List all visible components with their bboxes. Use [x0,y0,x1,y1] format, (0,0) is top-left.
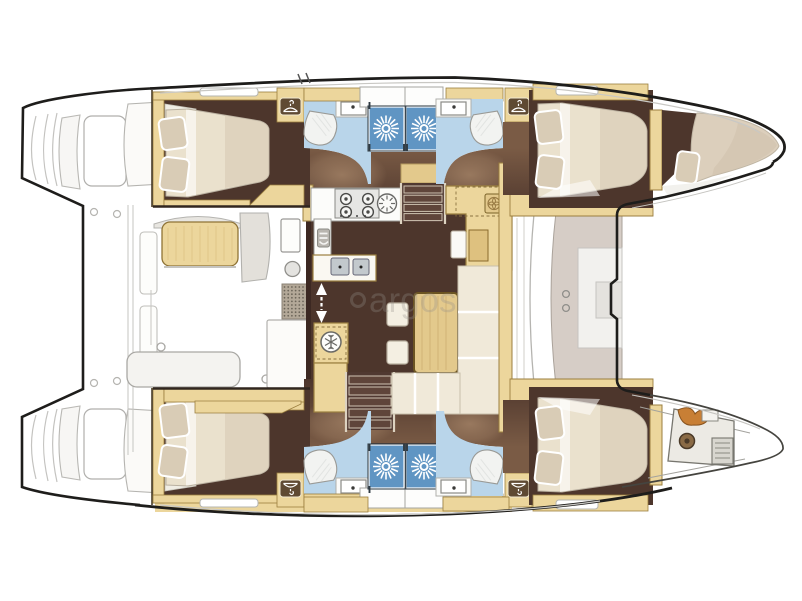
svg-text:argos: argos [369,281,457,320]
